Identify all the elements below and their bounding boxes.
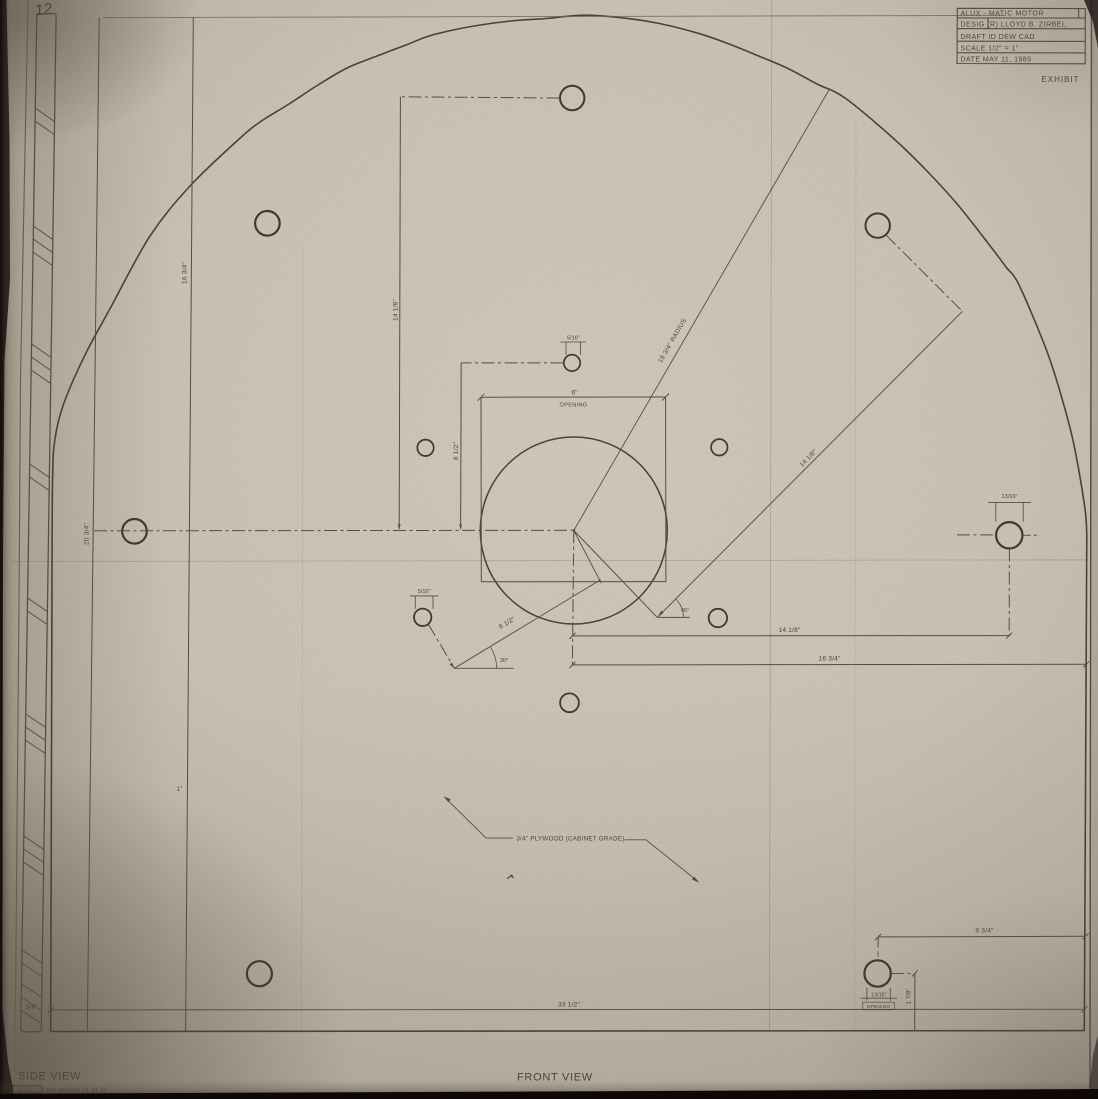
svg-text:SCALE 1/2" = 1": SCALE 1/2" = 1" bbox=[961, 45, 1019, 52]
svg-text:20 3/4": 20 3/4" bbox=[84, 523, 91, 546]
svg-text:16 3/4": 16 3/4" bbox=[818, 656, 841, 663]
svg-text:my photos (1 of 1): my photos (1 of 1) bbox=[47, 1087, 107, 1094]
svg-text:ALUX - MATIC MOTOR: ALUX - MATIC MOTOR bbox=[961, 11, 1045, 18]
svg-text:33 1/2": 33 1/2" bbox=[558, 1001, 581, 1008]
svg-text:DRAFT ID DEW CAD: DRAFT ID DEW CAD bbox=[961, 34, 1035, 41]
svg-text:5/16": 5/16" bbox=[418, 589, 431, 595]
svg-text:5/16": 5/16" bbox=[567, 335, 580, 341]
svg-text:16 3/4": 16 3/4" bbox=[182, 262, 189, 285]
svg-text:EXHIBIT: EXHIBIT bbox=[1041, 75, 1079, 84]
svg-text:OPENING: OPENING bbox=[560, 403, 588, 409]
svg-text:14 1/8": 14 1/8" bbox=[778, 627, 801, 634]
svg-text:76-77: 76-77 bbox=[16, 1087, 31, 1093]
svg-text:1 7/8": 1 7/8" bbox=[906, 989, 913, 1005]
svg-text:12: 12 bbox=[34, 0, 54, 19]
svg-text:13/16": 13/16" bbox=[871, 993, 886, 999]
svg-text:DESIG (R) LLOYD B. ZIRBEL: DESIG (R) LLOYD B. ZIRBEL bbox=[961, 21, 1067, 28]
svg-text:45°: 45° bbox=[681, 608, 689, 614]
svg-text:14 1/8": 14 1/8" bbox=[393, 299, 400, 322]
svg-text:6": 6" bbox=[571, 390, 578, 397]
svg-text:9 3/4": 9 3/4" bbox=[975, 928, 994, 935]
svg-text:1": 1" bbox=[177, 787, 183, 793]
svg-text:3/4" PLYWOOD (CABINET GRADE): 3/4" PLYWOOD (CABINET GRADE) bbox=[516, 836, 624, 843]
svg-text:DATE MAY 11, 1989: DATE MAY 11, 1989 bbox=[961, 56, 1032, 63]
svg-text:30°: 30° bbox=[500, 658, 508, 664]
svg-text:8 1/2": 8 1/2" bbox=[453, 441, 460, 460]
svg-text:13/16": 13/16" bbox=[1002, 494, 1018, 500]
svg-text:3/4": 3/4" bbox=[26, 1004, 38, 1011]
